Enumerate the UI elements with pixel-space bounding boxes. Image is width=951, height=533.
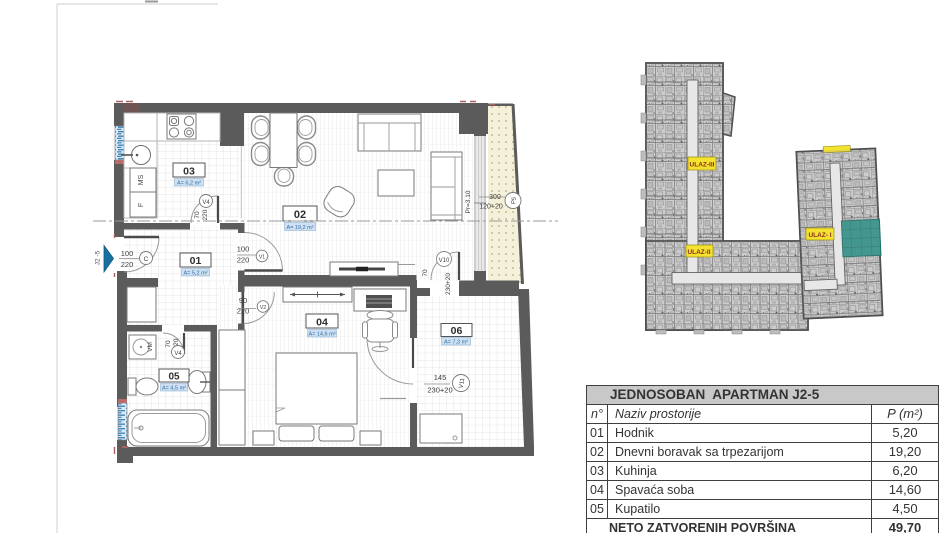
svg-text:06: 06 — [451, 325, 463, 337]
svg-text:220: 220 — [237, 307, 250, 316]
svg-text:70: 70 — [194, 211, 201, 219]
svg-text:A= 6,2 m²: A= 6,2 m² — [177, 181, 201, 187]
svg-text:220: 220 — [202, 209, 209, 220]
svg-text:V1: V1 — [259, 255, 265, 261]
svg-text:A= 14,6 m²: A= 14,6 m² — [308, 332, 335, 338]
svg-text:ULAZ- I: ULAZ- I — [808, 232, 831, 239]
svg-text:J2 -5: J2 -5 — [95, 250, 102, 265]
svg-text:VM: VM — [147, 342, 154, 352]
svg-text:V4: V4 — [202, 200, 210, 206]
svg-text:ULAZ-II: ULAZ-II — [687, 249, 710, 256]
svg-text:220: 220 — [121, 260, 134, 269]
svg-text:120+20: 120+20 — [479, 204, 503, 211]
svg-text:70: 70 — [165, 340, 172, 348]
svg-text:A= 5,2 m²: A= 5,2 m² — [184, 271, 208, 277]
svg-text:100: 100 — [121, 249, 134, 258]
svg-text:100: 100 — [237, 245, 250, 254]
svg-text:03: 03 — [183, 166, 195, 178]
svg-text:230+20: 230+20 — [427, 386, 452, 395]
svg-text:V4: V4 — [174, 351, 182, 357]
svg-text:04: 04 — [316, 317, 328, 329]
svg-text:220: 220 — [237, 256, 250, 265]
svg-text:A= 4,5 m²: A= 4,5 m² — [162, 386, 186, 392]
svg-text:V2: V2 — [260, 305, 266, 311]
svg-text:90: 90 — [239, 296, 247, 305]
svg-text:C: C — [144, 256, 149, 263]
svg-text:01: 01 — [190, 255, 202, 267]
svg-text:F: F — [138, 203, 145, 207]
svg-text:MS: MS — [138, 174, 145, 185]
svg-text:230+20: 230+20 — [445, 273, 452, 295]
svg-text:Pr=3.10: Pr=3.10 — [465, 190, 472, 213]
svg-text:02: 02 — [294, 209, 306, 221]
svg-text:A= 19,2 m²: A= 19,2 m² — [286, 225, 313, 231]
svg-text:V10: V10 — [439, 258, 450, 264]
svg-text:145: 145 — [434, 373, 447, 382]
svg-text:300: 300 — [489, 194, 501, 201]
svg-text:A= 7,3 m²: A= 7,3 m² — [444, 340, 468, 346]
svg-text:05: 05 — [168, 372, 180, 383]
svg-text:70: 70 — [422, 269, 429, 277]
svg-text:ULAZ-III: ULAZ-III — [690, 162, 715, 169]
